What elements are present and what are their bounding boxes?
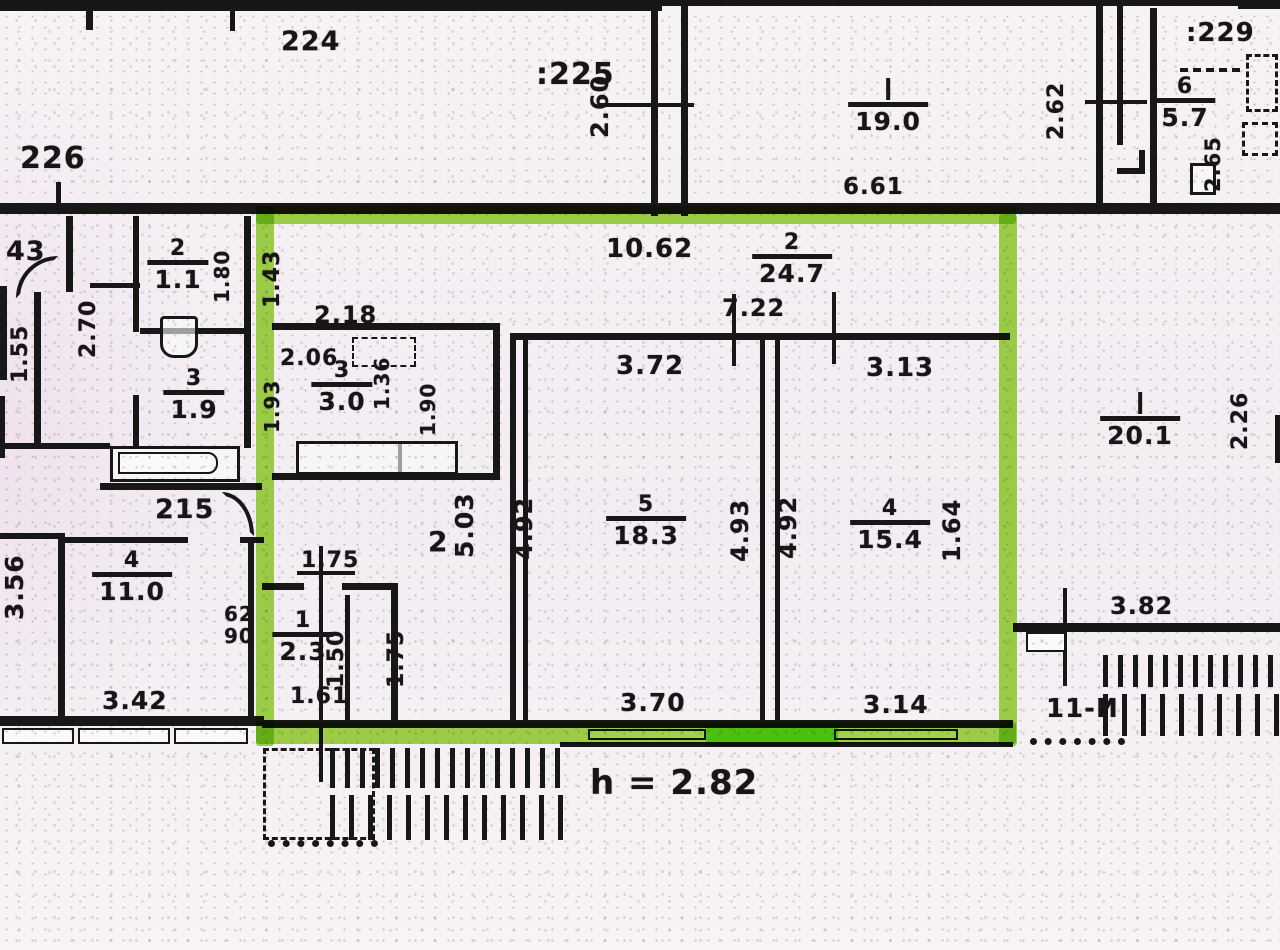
room-label: 224.7	[752, 232, 832, 286]
dim-label-v: 4.92	[512, 497, 536, 560]
room-leader-tick	[1138, 392, 1142, 414]
dim-label-v: 2.70	[78, 300, 100, 358]
wall	[342, 583, 398, 590]
wall	[760, 340, 765, 725]
room-area: 15.4	[850, 520, 930, 552]
dim-label-v: 3.56	[2, 554, 27, 620]
wall	[1096, 0, 1103, 210]
wall	[493, 323, 500, 480]
room-number: 3	[334, 360, 350, 382]
dim-label-h: 3.14	[863, 692, 929, 717]
room-area: 19.0	[848, 102, 928, 134]
dim-leader	[230, 5, 235, 31]
dim-label-h: 3.13	[866, 355, 934, 381]
dim-label-h: 1.75	[301, 550, 359, 572]
dim-label-h: 6.61	[843, 176, 904, 199]
room-number: 4	[124, 550, 140, 572]
closet-dashed	[1180, 68, 1240, 72]
room-area: 11.0	[92, 572, 172, 604]
wall	[58, 537, 188, 543]
green-highlight-top	[256, 206, 1016, 224]
green-highlight-bottom	[256, 722, 1016, 744]
balcony-hatch	[1103, 694, 1280, 736]
room-area: 18.3	[606, 516, 686, 548]
dim-label-v: 2.62	[1046, 82, 1068, 140]
wall	[651, 0, 658, 216]
dim-label-h: 3.82	[1110, 594, 1173, 618]
dim-label-h: 2.18	[314, 303, 377, 327]
room-number: 5	[638, 494, 654, 516]
height-note: h = 2.82	[590, 766, 758, 800]
balcony-hatch	[330, 748, 568, 788]
room-number: 1	[295, 610, 311, 632]
room-area: 1.1	[147, 260, 208, 292]
scan-edge	[1238, 0, 1280, 9]
wall	[133, 216, 139, 332]
green-highlight-window	[706, 722, 838, 746]
counter	[296, 441, 458, 475]
window	[174, 728, 248, 744]
wall	[0, 533, 64, 539]
wall	[86, 0, 93, 30]
dim-label-v: 2.26	[1230, 392, 1252, 450]
closet-dashed	[1242, 122, 1278, 156]
green-highlight-right	[999, 214, 1017, 746]
bathtub-inner	[118, 452, 218, 474]
wall	[1013, 623, 1280, 632]
scan-edge	[1275, 415, 1280, 463]
room-area: 1.9	[163, 390, 224, 422]
balcony-hatch	[1103, 655, 1280, 687]
room-label: 415.4	[850, 498, 930, 552]
dim-leader	[1085, 100, 1147, 104]
door-jamb	[1139, 150, 1145, 174]
room-label: 411.0	[92, 550, 172, 604]
balcony-dotted	[1030, 731, 1125, 745]
dim-label-v: 1.93	[262, 380, 282, 433]
window	[2, 728, 74, 744]
wall	[1117, 0, 1123, 145]
unit-label: 43	[6, 238, 46, 265]
dim-label-h: 3.70	[620, 690, 686, 715]
room-label: 20.1	[1100, 392, 1180, 448]
dim-label-v: 1.36	[372, 357, 392, 410]
room-number: 2	[784, 232, 800, 254]
dim-label-h: 7.22	[722, 296, 785, 320]
wall	[0, 443, 110, 449]
room-label: 33.0	[311, 360, 372, 414]
unit-label: :229	[1186, 20, 1255, 46]
wall	[66, 216, 73, 292]
room-area: 20.1	[1100, 416, 1180, 448]
room-leader-tick	[886, 78, 890, 100]
unit-label: 11-И	[1046, 696, 1119, 722]
room-area: 3.0	[311, 382, 372, 414]
wall	[681, 0, 688, 216]
wall	[244, 216, 251, 448]
floor-plan-scan: 224:225226:2294321511-И210.627.223.723.1…	[0, 0, 1280, 950]
wall	[272, 323, 500, 330]
toilet-icon	[160, 316, 198, 358]
room-label: 12.3	[272, 610, 333, 664]
dim-label-v: 1.90	[418, 383, 438, 436]
dim-leader	[90, 283, 140, 288]
dim-label-v: 1.75	[386, 630, 408, 688]
wall	[100, 483, 262, 490]
dim-leader	[832, 292, 836, 364]
balcony-dotted	[268, 833, 378, 847]
dim-label-v: 1.55	[10, 325, 32, 383]
room-label: 518.3	[606, 494, 686, 548]
room-number: 6	[1177, 76, 1193, 98]
wall	[58, 533, 65, 725]
balcony-door	[1026, 632, 1066, 652]
dim-label-v: 4.92	[776, 496, 800, 559]
dim-label-h: 1.61	[290, 686, 348, 708]
door-arc-icon	[222, 492, 254, 536]
room-area: 24.7	[752, 254, 832, 286]
closet-dashed	[1246, 54, 1278, 112]
unit-label: 224	[281, 28, 340, 55]
room-label: 65.7	[1154, 76, 1215, 130]
dim-label-v: 2.65	[1203, 136, 1224, 192]
dim-label-h: 62	[224, 604, 254, 624]
room-area: 2.3	[272, 632, 333, 664]
wall	[34, 292, 41, 447]
room-area: 5.7	[1154, 98, 1215, 130]
unit-label: 215	[155, 496, 214, 523]
dim-label-v: 1.80	[212, 250, 232, 303]
dim-label-v: 1.64	[940, 499, 964, 562]
dim-leader	[56, 182, 61, 206]
dim-label-h: 10.62	[606, 236, 693, 262]
dim-label-v: 5.03	[452, 492, 477, 558]
room-label: 31.9	[163, 368, 224, 422]
room-label: 21.1	[147, 238, 208, 292]
dim-label-h: 3.42	[102, 688, 168, 713]
room-number: 3	[186, 368, 202, 390]
dim-label-h: 90	[224, 626, 254, 646]
wall	[133, 395, 139, 447]
scan-edge	[0, 5, 662, 11]
room-number: 2	[170, 238, 186, 260]
scan-edge	[0, 286, 7, 380]
unit-label: 226	[20, 144, 86, 174]
window	[78, 728, 170, 744]
unit-label: 2	[428, 528, 448, 556]
dim-label-v: 2.60	[588, 75, 612, 138]
room-label: 19.0	[848, 78, 928, 134]
wall	[510, 333, 1010, 340]
wall	[0, 716, 264, 726]
room-number: 4	[882, 498, 898, 520]
dim-label-v: 1.43	[262, 250, 284, 308]
dim-label-h: 3.72	[616, 353, 684, 379]
dim-label-v: 4.93	[728, 499, 752, 562]
